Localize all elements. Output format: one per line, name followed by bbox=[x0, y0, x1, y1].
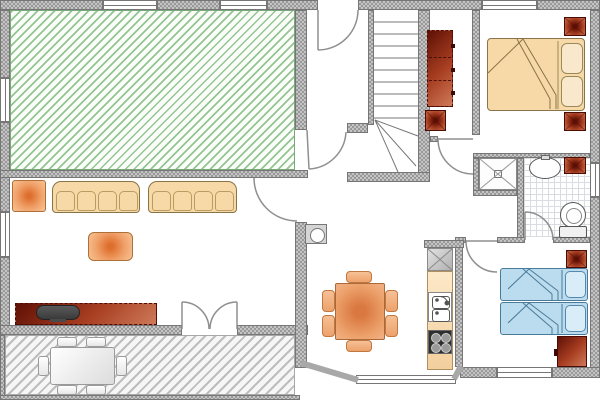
wardrobe-shelf-line bbox=[429, 57, 451, 58]
stove bbox=[428, 330, 452, 354]
living-door-arc bbox=[254, 178, 297, 221]
dining-chair bbox=[346, 340, 372, 352]
nightstand bbox=[566, 250, 587, 268]
wall-bedroom2-bottom bbox=[460, 367, 497, 378]
sofa-cushion bbox=[98, 191, 117, 211]
dining-chair bbox=[385, 290, 398, 312]
window bbox=[0, 78, 10, 122]
pillow bbox=[565, 305, 586, 332]
wall-top bbox=[157, 0, 220, 10]
wall-right bbox=[590, 10, 600, 163]
wall-hall-west bbox=[295, 10, 307, 130]
wall-top bbox=[537, 0, 600, 10]
window bbox=[0, 212, 10, 257]
coffee-table bbox=[88, 232, 133, 261]
kitchen-sink bbox=[428, 292, 452, 322]
wall-terrace-left bbox=[0, 335, 5, 400]
sofa bbox=[148, 181, 237, 213]
wall-stair-stub bbox=[347, 123, 368, 133]
shower-drain bbox=[494, 170, 502, 178]
sink-basin bbox=[432, 296, 450, 309]
burner bbox=[441, 333, 451, 343]
window bbox=[590, 163, 600, 197]
nightstand bbox=[564, 17, 586, 36]
wall-stair-left bbox=[368, 10, 374, 125]
wall-bathroom-west bbox=[517, 158, 524, 243]
wall-greenroom-bottom bbox=[0, 170, 308, 178]
burner bbox=[431, 343, 441, 353]
tv-set bbox=[36, 305, 80, 320]
wall-bedroom2-west bbox=[455, 243, 463, 367]
burner bbox=[431, 333, 441, 343]
wardrobe-knob bbox=[451, 44, 455, 48]
sofa-cushion bbox=[119, 191, 138, 211]
wall-right bbox=[590, 197, 600, 378]
wardrobe-knob bbox=[451, 91, 455, 95]
wall-living-bottom bbox=[0, 325, 182, 335]
wall-stair-bottom bbox=[347, 172, 430, 182]
wardrobe-shelf-line bbox=[429, 80, 451, 81]
sofa-cushion bbox=[215, 191, 234, 211]
green-room-floor bbox=[10, 10, 295, 170]
wall-left bbox=[0, 10, 10, 78]
dresser-tab bbox=[554, 349, 558, 356]
terrace-chair bbox=[38, 356, 49, 376]
wall-top bbox=[358, 0, 482, 10]
sofa-cushion bbox=[56, 191, 75, 211]
wardrobe bbox=[427, 30, 453, 107]
pillow bbox=[561, 43, 583, 74]
terrace-chair bbox=[116, 356, 127, 376]
wall-boiler bbox=[305, 224, 327, 244]
toilet-seat bbox=[566, 208, 582, 224]
window bbox=[482, 0, 537, 10]
sink-basin bbox=[432, 309, 450, 322]
corridor-door-arc bbox=[438, 139, 473, 174]
toilet-bowl bbox=[560, 202, 586, 228]
floor-plan-canvas bbox=[0, 0, 600, 400]
wardrobe-knob bbox=[451, 68, 455, 72]
wall-top bbox=[0, 0, 103, 10]
wall-doorframe-stub bbox=[430, 136, 438, 142]
wall-left bbox=[0, 122, 10, 212]
wall-top bbox=[267, 0, 318, 10]
hall-door-arc bbox=[309, 132, 346, 169]
pillow bbox=[565, 271, 586, 298]
terrace-table bbox=[50, 347, 115, 385]
orange-floor-pad bbox=[12, 180, 46, 212]
window bbox=[103, 0, 157, 10]
terrace-chair bbox=[57, 337, 77, 347]
terrace-chair bbox=[57, 385, 77, 395]
window bbox=[497, 367, 552, 378]
boiler-dial bbox=[310, 228, 325, 243]
wall-counter-head bbox=[424, 240, 464, 248]
double-door-arc bbox=[210, 302, 237, 329]
basin-faucet bbox=[541, 155, 550, 160]
wall-divider bbox=[497, 237, 525, 243]
sofa-cushion bbox=[152, 191, 171, 211]
fridge bbox=[427, 248, 453, 271]
sofa-cushion bbox=[77, 191, 96, 211]
burner bbox=[441, 343, 451, 353]
terrace-chair bbox=[86, 385, 106, 395]
wall-shower-bottom bbox=[473, 190, 517, 196]
dining-chair bbox=[346, 271, 372, 283]
nightstand bbox=[564, 112, 586, 131]
dining-table bbox=[335, 283, 385, 340]
dining-chair bbox=[322, 315, 335, 337]
tv-stand bbox=[50, 319, 66, 322]
wall-bedroom1-west bbox=[472, 10, 480, 135]
hall-cabinet bbox=[425, 110, 446, 131]
laundry-box bbox=[564, 157, 586, 174]
terrace-chair bbox=[86, 337, 106, 347]
wash-basin bbox=[529, 157, 561, 179]
window bbox=[220, 0, 267, 10]
sofa-cushion bbox=[194, 191, 213, 211]
dining-chair bbox=[385, 315, 398, 337]
sofa-cushion bbox=[173, 191, 192, 211]
dining-chair bbox=[322, 290, 335, 312]
dresser bbox=[557, 336, 587, 367]
double-door-arc bbox=[182, 302, 209, 329]
wall-left bbox=[0, 257, 10, 335]
front-door-arc bbox=[318, 10, 358, 50]
toilet-tank bbox=[559, 226, 587, 238]
bedroom2-door-arc bbox=[466, 241, 497, 272]
pillow bbox=[561, 76, 583, 107]
wall-bedroom2-bottom bbox=[552, 367, 600, 378]
bay-window bbox=[356, 375, 456, 384]
wall-terrace-bottom bbox=[0, 395, 300, 400]
staircase-treads bbox=[374, 22, 418, 172]
sofa bbox=[52, 181, 140, 213]
